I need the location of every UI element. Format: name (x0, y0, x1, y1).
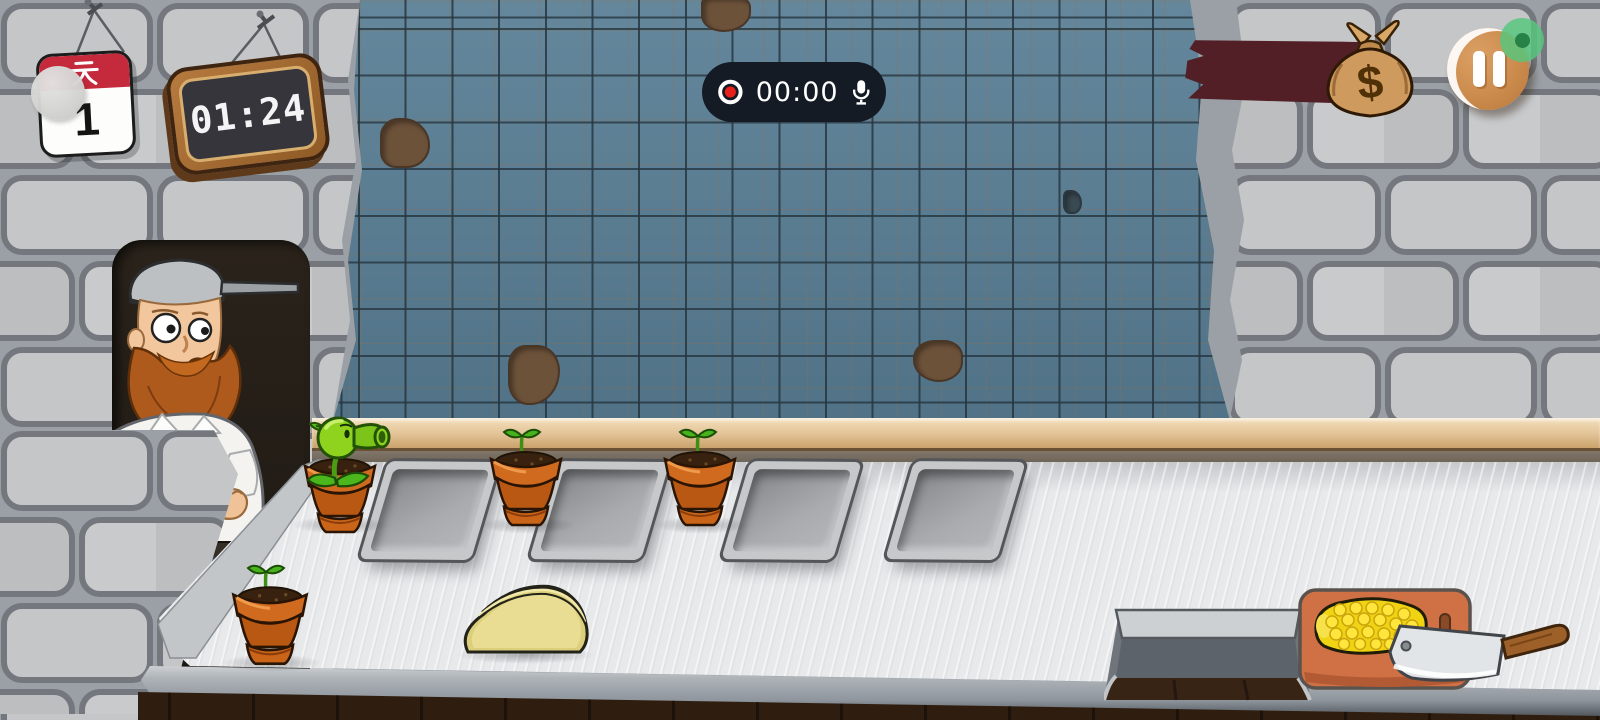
game-scene: 1 01:24 00:00 $ (0, 0, 1600, 720)
flower-pot[interactable] (228, 580, 312, 670)
peashooter-plant[interactable] (302, 408, 394, 492)
screen-recorder-pill[interactable]: 00:00 (702, 62, 886, 122)
timer-screen: 01:24 (177, 64, 318, 163)
calendar-overlay-ball (31, 66, 85, 120)
flower-pot[interactable] (486, 445, 566, 531)
dough-pile[interactable] (458, 578, 594, 662)
overlay-dot-core (1515, 33, 1530, 48)
record-button-icon[interactable] (717, 75, 744, 109)
flower-pot[interactable] (660, 445, 740, 531)
microphone-icon[interactable] (851, 75, 871, 109)
dollar-sign: $ (1355, 55, 1386, 109)
money-bag-icon[interactable]: $ (1318, 20, 1422, 124)
broken-tile (1063, 190, 1082, 214)
cleaver (1390, 625, 1568, 680)
broken-tile (508, 345, 560, 405)
broken-tile (701, 0, 751, 32)
floating-overlay-icon[interactable] (1500, 18, 1544, 62)
broken-tile (913, 340, 963, 382)
timer-value: 01:24 (188, 86, 309, 143)
cutting-board[interactable] (1294, 584, 1570, 702)
recorder-elapsed-time: 00:00 (756, 77, 839, 108)
serving-chute[interactable] (1104, 608, 1316, 708)
pause-icon (1493, 51, 1505, 87)
pause-icon (1473, 51, 1485, 87)
timer-sign: 01:24 (164, 51, 332, 177)
